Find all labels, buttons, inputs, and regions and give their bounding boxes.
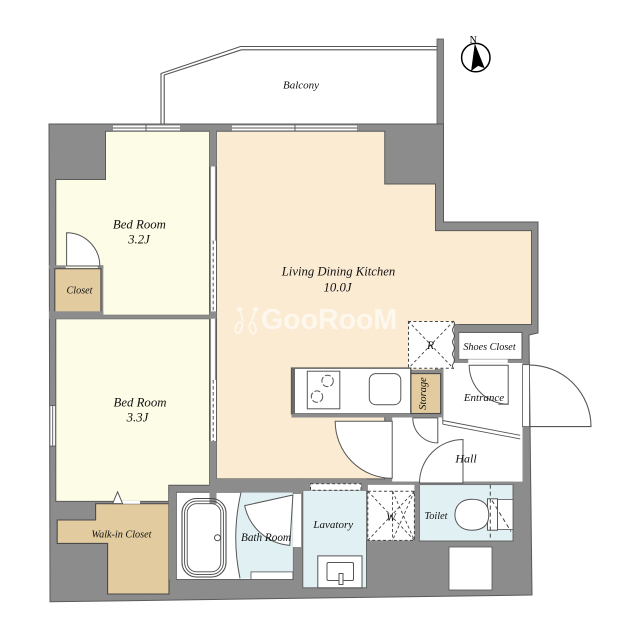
svg-text:Living Dining Kitchen: Living Dining Kitchen [281,265,395,279]
svg-text:3.2J: 3.2J [127,232,151,246]
svg-text:10.0J: 10.0J [323,281,352,295]
svg-text:Walk-in Closet: Walk-in Closet [92,530,153,541]
svg-text:Bed Room: Bed Room [114,396,167,410]
svg-text:Bed Room: Bed Room [113,218,166,232]
svg-text:R: R [426,340,434,352]
svg-text:W: W [386,512,397,524]
svg-text:GooRooM: GooRooM [261,304,397,336]
svg-text:Entrance: Entrance [463,392,504,404]
svg-text:Lavatory: Lavatory [312,519,353,531]
svg-text:Hall: Hall [454,452,477,466]
svg-text:Toilet: Toilet [424,511,448,522]
svg-text:Closet: Closet [66,286,93,297]
svg-text:3.3J: 3.3J [126,411,150,425]
svg-text:Storage: Storage [418,377,429,410]
svg-text:Shoes Closet: Shoes Closet [463,342,517,353]
svg-text:N: N [470,35,477,46]
svg-text:Balcony: Balcony [283,80,319,92]
svg-text:Bath Room: Bath Room [241,532,291,544]
